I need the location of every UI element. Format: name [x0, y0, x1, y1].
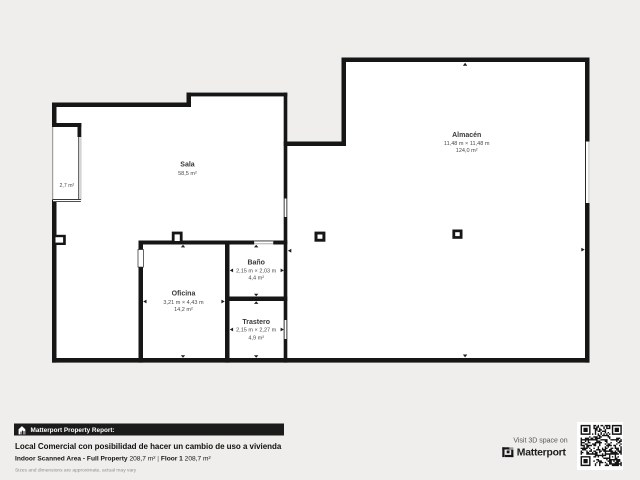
svg-text:4,4 m²: 4,4 m²	[248, 276, 264, 282]
svg-text:4,9 m²: 4,9 m²	[248, 336, 264, 342]
svg-text:Matterport Property Report:: Matterport Property Report:	[31, 427, 115, 434]
svg-text:14,2 m²: 14,2 m²	[174, 307, 193, 313]
svg-text:11,48 m × 11,48 m: 11,48 m × 11,48 m	[444, 141, 490, 147]
svg-text:2,15 m × 2,03 m: 2,15 m × 2,03 m	[236, 269, 277, 275]
svg-text:Matterport: Matterport	[517, 448, 567, 459]
svg-text:Baño: Baño	[247, 259, 265, 266]
svg-text:Visit 3D space on: Visit 3D space on	[513, 438, 567, 445]
svg-text:Indoor Scanned Area - Full Pro: Indoor Scanned Area - Full Property 208,…	[15, 455, 211, 462]
svg-text:124,0 m²: 124,0 m²	[456, 148, 478, 154]
svg-text:Local Comercial con posibilida: Local Comercial con posibilidad de hacer…	[15, 442, 282, 451]
svg-text:Sizes and dimensions are appro: Sizes and dimensions are approximate, ac…	[15, 468, 137, 474]
svg-text:Trastero: Trastero	[242, 319, 270, 326]
svg-text:Almacén: Almacén	[452, 132, 481, 139]
svg-text:Oficina: Oficina	[172, 291, 196, 298]
svg-text:58,5 m²: 58,5 m²	[178, 171, 197, 177]
svg-text:2,7 m²: 2,7 m²	[60, 183, 75, 189]
svg-text:3,21 m × 4,43 m: 3,21 m × 4,43 m	[163, 300, 204, 306]
svg-text:Sala: Sala	[180, 161, 195, 168]
svg-text:2,15 m × 2,27 m: 2,15 m × 2,27 m	[236, 328, 277, 334]
